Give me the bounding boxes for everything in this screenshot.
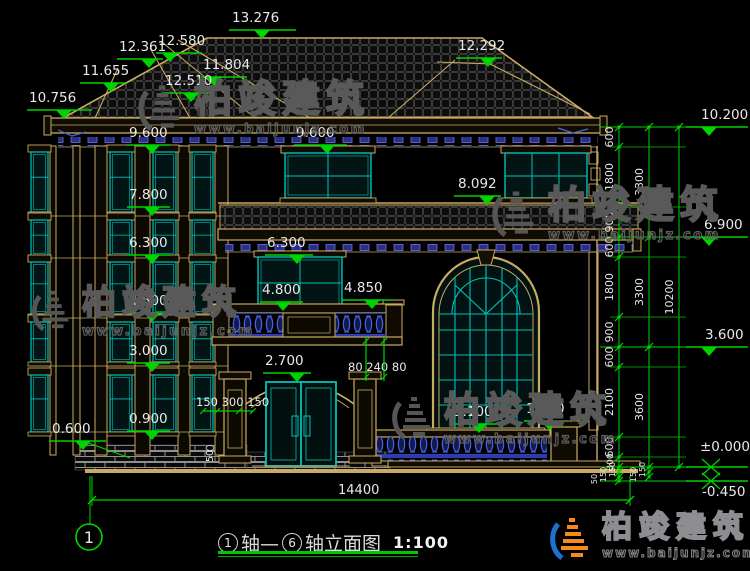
svg-text:9.600: 9.600 xyxy=(129,125,168,141)
elevation-marker: 10.200 xyxy=(686,107,748,136)
dim-overall-width: 14400 xyxy=(88,476,634,506)
dimension-chain: 6001800900600180090060021006003001501505… xyxy=(590,123,623,485)
dimension-chain: 10200 xyxy=(663,123,683,471)
svg-text:2100: 2100 xyxy=(603,388,616,416)
svg-text:6.300: 6.300 xyxy=(267,235,306,251)
svg-text:150: 150 xyxy=(608,462,617,477)
svg-text:10.756: 10.756 xyxy=(29,90,76,106)
title-underline xyxy=(218,556,418,557)
svg-text:150: 150 xyxy=(638,462,647,477)
elevation-marker: 8.092 xyxy=(454,176,501,205)
right-wall xyxy=(589,146,600,462)
svg-text:3300: 3300 xyxy=(633,278,646,306)
svg-text:-0.450: -0.450 xyxy=(702,484,746,500)
svg-text:600: 600 xyxy=(603,347,616,368)
elevation-marker: 2.700 xyxy=(263,353,311,382)
svg-text:1800: 1800 xyxy=(603,163,616,191)
svg-text:1: 1 xyxy=(84,528,94,547)
svg-text:12.510: 12.510 xyxy=(165,73,212,89)
svg-text:80 240 80: 80 240 80 xyxy=(348,360,407,374)
elevation-marker: 3.600 xyxy=(686,327,748,356)
svg-text:10.200: 10.200 xyxy=(701,107,748,123)
entrance xyxy=(219,372,381,466)
svg-text:14400: 14400 xyxy=(338,483,379,498)
svg-text:4.500: 4.500 xyxy=(129,293,168,309)
entrance-door xyxy=(266,382,336,466)
svg-text:0.600: 0.600 xyxy=(52,421,91,437)
svg-text:8.092: 8.092 xyxy=(458,176,497,192)
elevation-drawing: 13.27612.58012.36111.80412.51011.65510.7… xyxy=(0,0,750,571)
svg-text:13.276: 13.276 xyxy=(232,10,279,26)
svg-text:1.250: 1.250 xyxy=(526,401,565,417)
dimension-chain: 330033003600150150 xyxy=(629,123,653,482)
dim-entrance-left: 150 300 150 xyxy=(196,395,269,414)
svg-text:150: 150 xyxy=(599,467,608,482)
window-3f-right xyxy=(500,146,592,203)
svg-text:2.700: 2.700 xyxy=(265,353,304,369)
axis-circle-start: 1 xyxy=(218,533,238,553)
svg-text:600: 600 xyxy=(603,237,616,258)
svg-text:1.100: 1.100 xyxy=(454,404,493,420)
svg-text:4.850: 4.850 xyxy=(344,280,383,296)
svg-text:12.292: 12.292 xyxy=(458,38,505,54)
elevation-marker: -0.450 xyxy=(686,473,748,500)
svg-text:150 300 150: 150 300 150 xyxy=(196,395,269,409)
svg-text:±0.000: ±0.000 xyxy=(700,439,750,455)
window-3f-center xyxy=(280,146,376,203)
svg-text:0.900: 0.900 xyxy=(129,411,168,427)
axis-bubble: 1 xyxy=(76,476,102,550)
svg-text:4.800: 4.800 xyxy=(262,282,301,298)
svg-text:9.600: 9.600 xyxy=(296,125,335,141)
elevation-marker: 6.900 xyxy=(686,217,748,246)
svg-text:11.804: 11.804 xyxy=(203,57,250,73)
svg-text:1800: 1800 xyxy=(603,273,616,301)
elevation-marker: ±0.000 xyxy=(686,439,750,475)
svg-text:900: 900 xyxy=(603,212,616,233)
svg-text:11.655: 11.655 xyxy=(82,63,129,79)
blueprint-canvas: 13.27612.58012.36111.80412.51011.65510.7… xyxy=(0,0,750,571)
svg-text:3.600: 3.600 xyxy=(705,327,744,343)
svg-text:50: 50 xyxy=(590,474,599,484)
drawing-scale: 1:100 xyxy=(393,533,449,552)
elevation-marker: 13.276 xyxy=(229,10,296,39)
svg-text:3600: 3600 xyxy=(633,393,646,421)
svg-text:10200: 10200 xyxy=(663,280,676,315)
svg-text:6.900: 6.900 xyxy=(704,217,743,233)
ground-line xyxy=(85,469,638,473)
svg-text:3.000: 3.000 xyxy=(129,343,168,359)
svg-text:6.300: 6.300 xyxy=(129,235,168,251)
title-underline xyxy=(218,551,418,554)
svg-text:3300: 3300 xyxy=(633,168,646,196)
axis-circle-end: 6 xyxy=(282,533,302,553)
svg-text:12.361: 12.361 xyxy=(119,39,166,55)
balcony-railing xyxy=(210,300,404,345)
svg-text:7.800: 7.800 xyxy=(129,187,168,203)
svg-text:50: 50 xyxy=(205,450,216,462)
svg-text:900: 900 xyxy=(603,322,616,343)
svg-text:600: 600 xyxy=(603,127,616,148)
